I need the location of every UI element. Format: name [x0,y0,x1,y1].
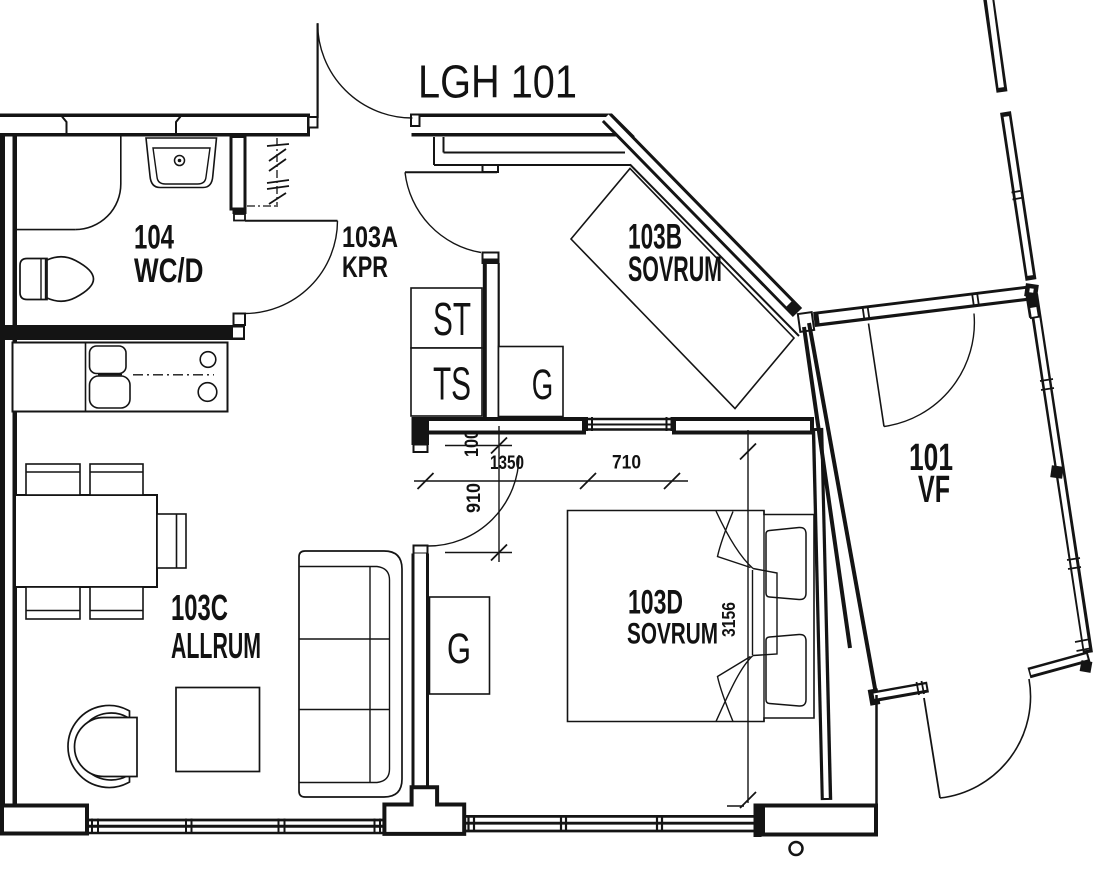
svg-text:VF: VF [918,469,950,511]
svg-text:103A: 103A [342,221,398,254]
svg-text:G: G [532,361,554,409]
svg-text:103D: 103D [628,584,683,622]
svg-text:WC/D: WC/D [134,252,204,290]
svg-text:SOVRUM: SOVRUM [627,618,718,651]
svg-text:103C: 103C [171,587,228,628]
svg-text:ALLRUM: ALLRUM [171,625,261,666]
svg-text:100: 100 [461,430,483,457]
svg-text:SOVRUM: SOVRUM [628,250,722,289]
svg-text:KPR: KPR [342,251,388,284]
svg-text:ST: ST [433,293,471,345]
svg-text:710: 710 [612,452,641,474]
svg-text:104: 104 [134,219,174,257]
svg-text:1350: 1350 [490,452,524,474]
svg-text:910: 910 [463,483,485,513]
svg-text:TS: TS [433,358,471,410]
svg-text:LGH 101: LGH 101 [418,56,577,108]
svg-text:3156: 3156 [719,602,739,637]
svg-text:G: G [447,625,471,673]
